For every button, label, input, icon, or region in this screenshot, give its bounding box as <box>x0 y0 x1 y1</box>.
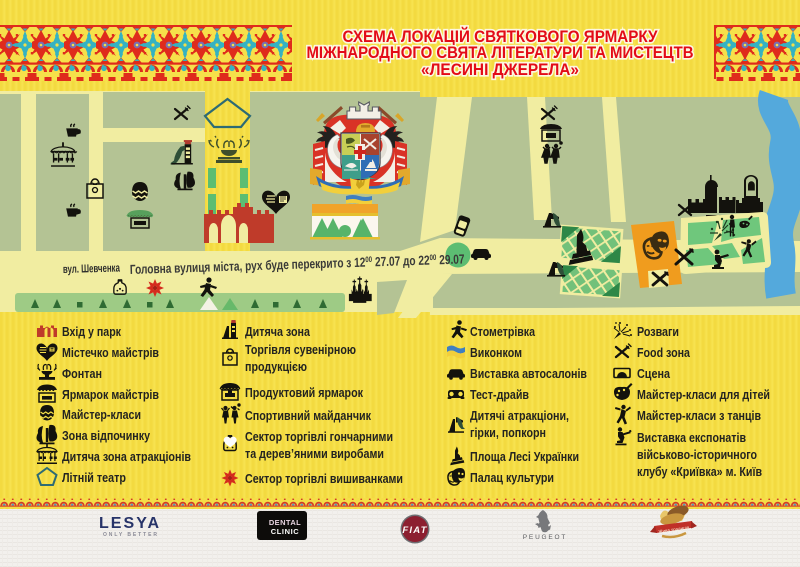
svg-text:Тест-драйв: Тест-драйв <box>470 387 529 402</box>
svg-text:Сцена: Сцена <box>637 366 671 381</box>
svg-text:Палац культури: Палац культури <box>470 470 554 485</box>
svg-text:вул. Шевченка: вул. Шевченка <box>63 263 121 276</box>
svg-text:Спортивний майданчик: Спортивний майданчик <box>245 408 371 423</box>
svg-text:FIAT: FIAT <box>402 525 427 536</box>
svg-text:Розваги: Розваги <box>637 324 679 339</box>
svg-text:Виконком: Виконком <box>470 345 522 360</box>
svg-text:Зона відпочинку: Зона відпочинку <box>62 428 151 443</box>
svg-text:Стометрівка: Стометрівка <box>470 324 536 339</box>
svg-text:CLINIC: CLINIC <box>271 527 300 536</box>
svg-text:Дитяча зона: Дитяча зона <box>245 324 311 339</box>
svg-text:Ярмарок майстрів: Ярмарок майстрів <box>62 387 159 402</box>
svg-text:Сектор торгівлі вишиванками: Сектор торгівлі вишиванками <box>245 471 403 486</box>
svg-text:Дитячі атракціони,: Дитячі атракціони, <box>470 408 569 423</box>
svg-text:Фонтан: Фонтан <box>62 366 102 381</box>
svg-text:Майстер-класи для дітей: Майстер-класи для дітей <box>637 387 770 402</box>
svg-text:клубу «Криївка» м. Київ: клубу «Криївка» м. Київ <box>637 464 762 479</box>
svg-text:Літній театр: Літній театр <box>62 470 126 485</box>
svg-text:Містечко майстрів: Містечко майстрів <box>62 345 159 360</box>
svg-text:МІЖНАРОДНОГО СВЯТА ЛІТЕРАТУРИ: МІЖНАРОДНОГО СВЯТА ЛІТЕРАТУРИ ТА МИСТЕЦТ… <box>307 44 694 62</box>
svg-text:Food зона: Food зона <box>637 345 691 360</box>
svg-text:Майстер-класи: Майстер-класи <box>62 407 141 422</box>
svg-text:LESYA: LESYA <box>99 515 163 532</box>
svg-text:Торгівля сувенірною: Торгівля сувенірною <box>245 342 356 357</box>
svg-text:Вхід у парк: Вхід у парк <box>62 324 121 339</box>
svg-text:Виставка автосалонів: Виставка автосалонів <box>470 366 587 381</box>
svg-text:Продуктовий ярмарок: Продуктовий ярмарок <box>245 385 363 400</box>
svg-text:та дерев’яними виробами: та дерев’яними виробами <box>245 446 384 461</box>
svg-text:Сектор торгівлі гончарними: Сектор торгівлі гончарними <box>245 429 393 444</box>
svg-text:продукцією: продукцією <box>245 359 307 374</box>
svg-text:Виставка експонатів: Виставка експонатів <box>637 430 746 445</box>
svg-text:військово-історичного: військово-історичного <box>637 447 757 462</box>
svg-text:Майстер-класи з танців: Майстер-класи з танців <box>637 408 761 423</box>
svg-text:«ЛЕСИНІ ДЖЕРЕЛА»: «ЛЕСИНІ ДЖЕРЕЛА» <box>421 61 579 79</box>
svg-text:PEUGEOT: PEUGEOT <box>523 534 567 541</box>
svg-text:DENTAL: DENTAL <box>269 518 301 527</box>
svg-text:Площа Лесі Українки: Площа Лесі Українки <box>470 449 579 464</box>
svg-text:гірки, попкорн: гірки, попкорн <box>470 425 546 440</box>
svg-text:ONLY BETTER: ONLY BETTER <box>103 532 159 538</box>
svg-text:Дитяча зона атракціонів: Дитяча зона атракціонів <box>62 449 191 464</box>
